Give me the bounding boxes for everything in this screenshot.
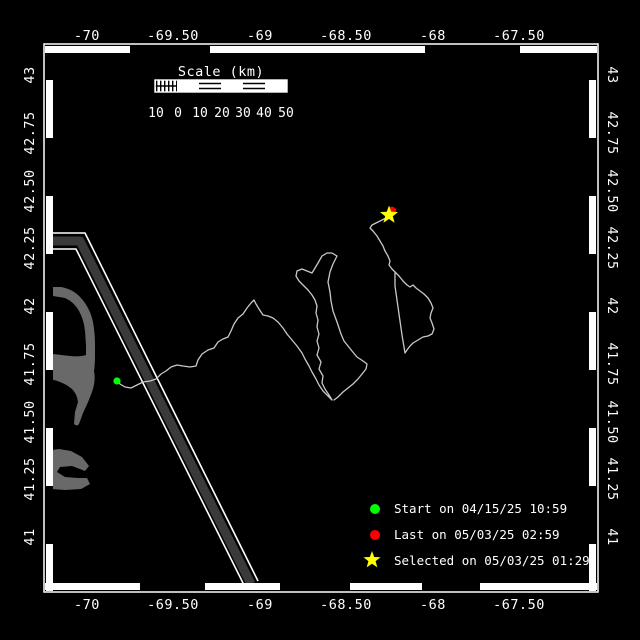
lat-tick-label: 41.25 bbox=[604, 457, 620, 500]
longitude-axis-top: -70 -69.50 -69 -68.50 -68 -67.50 bbox=[74, 28, 545, 44]
selected-legend-star-icon bbox=[363, 551, 380, 567]
legend-label-start: Start on 04/15/25 10:59 bbox=[394, 501, 567, 516]
longitude-axis-bottom: -70 -69.50 -69 -68.50 -68 -67.50 bbox=[74, 597, 545, 613]
track-path[interactable] bbox=[117, 216, 434, 400]
lon-tick-label: -70 bbox=[74, 28, 100, 44]
scale-bar-title: Scale (km) bbox=[178, 64, 264, 80]
lon-tick-label: -69.50 bbox=[147, 597, 199, 613]
legend-label-last: Last on 05/03/25 02:59 bbox=[394, 527, 560, 542]
last-legend-icon bbox=[370, 530, 380, 540]
scale-bar: Scale (km) 10 0 10 20 30 40 50 bbox=[148, 64, 294, 121]
lat-tick-label: 41 bbox=[22, 528, 38, 545]
lat-tick-label: 43 bbox=[604, 66, 620, 83]
lat-tick-label: 42.25 bbox=[22, 226, 38, 269]
lon-tick-label: -69.50 bbox=[147, 28, 199, 44]
lat-tick-label: 42.50 bbox=[604, 169, 620, 212]
scale-tick: 30 bbox=[235, 106, 251, 121]
lat-tick-label: 42.25 bbox=[604, 226, 620, 269]
lat-tick-label: 41.25 bbox=[22, 457, 38, 500]
lon-tick-label: -69 bbox=[247, 28, 273, 44]
lon-tick-label: -68 bbox=[420, 28, 446, 44]
scale-tick: 20 bbox=[214, 106, 230, 121]
legend-item-selected: Selected on 05/03/25 01:29 bbox=[363, 551, 589, 568]
map-viewport: Scale (km) 10 0 10 20 30 40 50 -70 -69.5… bbox=[0, 0, 640, 640]
lat-tick-label: 41.50 bbox=[604, 400, 620, 443]
lat-tick-label: 42.75 bbox=[604, 111, 620, 154]
start-legend-icon bbox=[370, 504, 380, 514]
lat-tick-label: 41.75 bbox=[22, 342, 38, 385]
start-marker[interactable] bbox=[113, 377, 120, 384]
lat-tick-label: 41 bbox=[604, 528, 620, 545]
scale-tick: 0 bbox=[174, 106, 182, 121]
lat-tick-label: 42.75 bbox=[22, 111, 38, 154]
legend-item-start: Start on 04/15/25 10:59 bbox=[370, 501, 567, 516]
lon-tick-label: -70 bbox=[74, 597, 100, 613]
legend-label-selected: Selected on 05/03/25 01:29 bbox=[394, 553, 590, 568]
lat-tick-label: 41.75 bbox=[604, 342, 620, 385]
lon-tick-label: -69 bbox=[247, 597, 273, 613]
legend: Start on 04/15/25 10:59 Last on 05/03/25… bbox=[363, 501, 589, 568]
lat-tick-label: 42.50 bbox=[22, 169, 38, 212]
lat-tick-label: 41.50 bbox=[22, 400, 38, 443]
track-map: Scale (km) 10 0 10 20 30 40 50 -70 -69.5… bbox=[0, 0, 640, 640]
lon-tick-label: -68.50 bbox=[320, 28, 372, 44]
lon-tick-label: -68 bbox=[420, 597, 446, 613]
scale-tick: 10 bbox=[192, 106, 208, 121]
latitude-axis-right: 43 42.75 42.50 42.25 42 41.75 41.50 41.2… bbox=[604, 66, 620, 545]
scale-tick: 10 bbox=[148, 106, 164, 121]
lon-tick-label: -68.50 bbox=[320, 597, 372, 613]
lat-tick-label: 42 bbox=[22, 297, 38, 314]
legend-item-last: Last on 05/03/25 02:59 bbox=[370, 527, 560, 542]
lon-tick-label: -67.50 bbox=[493, 597, 545, 613]
scale-bar-tick-labels: 10 0 10 20 30 40 50 bbox=[148, 106, 294, 121]
scale-tick: 50 bbox=[278, 106, 294, 121]
scale-tick: 40 bbox=[256, 106, 272, 121]
latitude-axis-left: 43 42.75 42.50 42.25 42 41.75 41.50 41.2… bbox=[22, 66, 38, 545]
lon-tick-label: -67.50 bbox=[493, 28, 545, 44]
lat-tick-label: 43 bbox=[22, 66, 38, 83]
lat-tick-label: 42 bbox=[604, 297, 620, 314]
